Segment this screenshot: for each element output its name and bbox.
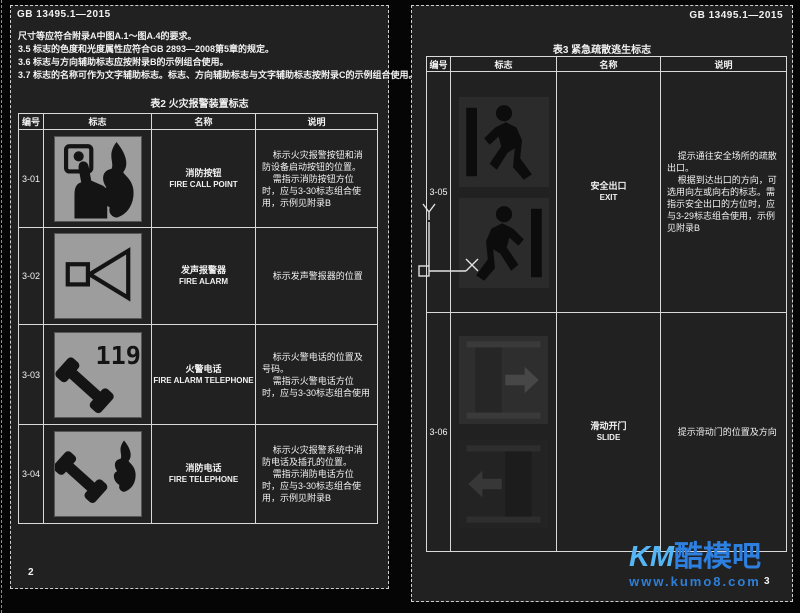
cad-canvas: GB 13495.1—2015 尺寸等应符合附录A中图A.1～图A.4的要求。 …: [0, 0, 800, 613]
sign-cell: 119: [44, 325, 151, 424]
row-id: 3-03: [19, 325, 43, 424]
fire-telephone-sign: [54, 431, 142, 517]
sign-cell: [44, 228, 151, 324]
table3-header-sign: 标志: [451, 57, 556, 71]
sign-name-cn: 发声报警器: [181, 264, 226, 276]
sign-name: 发声报警器 FIRE ALARM: [152, 228, 255, 324]
watermark-brand: KM酷模吧: [600, 542, 790, 572]
watermark-url: www.kumo8.com: [600, 574, 790, 589]
clause-line: 3.6 标志与方向辅助标志应按附录B的示例组合使用。: [18, 56, 386, 69]
clause-line: 3.7 标志的名称可作为文字辅助标志。标志、方向辅助标志与文字辅助标志按附录C的…: [18, 69, 386, 82]
fire-telephone-pictogram: [55, 432, 141, 516]
standard-number-left: GB 13495.1—2015: [17, 9, 111, 20]
sign-desc: 标示发声警报器的位置: [256, 228, 377, 324]
sign-desc: 标示火警电话的位置及号码。 需指示火警电话方位时，应与3-30标志组合使用: [256, 325, 377, 424]
desc-line: 标示火灾报警按钮和消防设备启动按钮的位置。: [262, 149, 371, 173]
table2-header-id: 编号: [19, 114, 43, 129]
sign-cell: [451, 313, 556, 551]
clause-line: 尺寸等应符合附录A中图A.1～图A.4的要求。: [18, 30, 386, 43]
table3-header-desc: 说明: [661, 57, 786, 71]
desc-line: 提示通往安全场所的疏散出口。: [667, 150, 780, 174]
slide-sign-stack: [459, 336, 548, 528]
ucs-axis-icon: [408, 196, 494, 288]
watermark: KM酷模吧 www.kumo8.com: [600, 542, 790, 589]
table2-header-desc: 说明: [256, 114, 377, 129]
sign-name: 安全出口 EXIT: [557, 72, 660, 312]
emergency-number-119: 119: [95, 341, 140, 370]
desc-line: 提示滑动门的位置及方向: [667, 426, 777, 438]
sign-cell: [44, 130, 151, 227]
sign-cell: [44, 425, 151, 523]
row-id: 3-01: [19, 130, 43, 227]
sign-desc: 提示通往安全场所的疏散出口。 根据到达出口的方向，可选用向左或向右的标志。需指示…: [661, 72, 786, 312]
sign-desc: 标示火灾报警按钮和消防设备启动按钮的位置。 需指示消防按钮方位时，应与3-30标…: [256, 130, 377, 227]
sign-name: 火警电话 FIRE ALARM TELEPHONE: [152, 325, 255, 424]
sign-name-en: FIRE TELEPHONE: [169, 474, 238, 486]
desc-line: 根据到达出口的方向，可选用向左或向右的标志。需指示安全出口的方位时，应与3-29…: [667, 174, 780, 234]
fire-alarm-telephone-pictogram: 119: [55, 333, 141, 417]
table2-header-sign: 标志: [44, 114, 151, 129]
sign-name-en: FIRE CALL POINT: [169, 179, 237, 191]
sign-name-cn: 消防电话: [185, 462, 221, 474]
sign-name: 消防电话 FIRE TELEPHONE: [152, 425, 255, 523]
sign-desc: 提示滑动门的位置及方向: [661, 313, 786, 551]
table2-title: 表2 火灾报警装置标志: [11, 95, 388, 110]
sign-name-en: FIRE ALARM TELEPHONE: [153, 375, 253, 387]
desc-line: 标示火警电话的位置及号码。: [262, 351, 371, 375]
exit-left-sign: [459, 97, 549, 187]
slide-door-right-sign: [459, 336, 548, 424]
y-axis-label-glyph: [423, 204, 435, 220]
fire-alarm-sign: [54, 233, 142, 319]
table2: 编号 标志 名称 说明 3-01 消防按钮 FIRE CALL POINT: [18, 113, 378, 524]
slide-door-left-pictogram: [459, 440, 548, 528]
table3-header-name: 名称: [557, 57, 660, 71]
fire-alarm-pictogram: [55, 234, 141, 318]
sign-name-en: EXIT: [600, 192, 618, 204]
fire-call-point-sign: [54, 136, 142, 222]
row-id: 3-02: [19, 228, 43, 324]
sign-name-cn: 消防按钮: [185, 167, 221, 179]
x-crosshair-glyph: [466, 259, 478, 271]
watermark-brand-km: KM: [629, 541, 674, 573]
sign-name-cn: 安全出口: [590, 180, 626, 192]
standard-number-right: GB 13495.1—2015: [689, 10, 783, 21]
sign-desc: 标示火灾报警系统中消防电话及插孔的位置。 需指示消防电话方位时，应与3-30标志…: [256, 425, 377, 523]
watermark-brand-cn: 酷模吧: [674, 541, 761, 573]
clause-line: 3.5 标志的色度和光度属性应符合GB 2893—2008第5章的规定。: [18, 43, 386, 56]
sheet-edge-dashed-line: [1, 0, 2, 613]
table3-title: 表3 紧急疏散逃生标志: [412, 41, 792, 56]
row-id: 3-04: [19, 425, 43, 523]
sign-name: 滑动开门 SLIDE: [557, 313, 660, 551]
page-number-2: 2: [28, 567, 34, 578]
desc-line: 标示火灾报警系统中消防电话及插孔的位置。: [262, 444, 371, 468]
sign-name: 消防按钮 FIRE CALL POINT: [152, 130, 255, 227]
desc-line: 需指示消防电话方位时，应与3-30标志组合使用，示例见附录B: [262, 468, 371, 504]
sign-name-cn: 滑动开门: [590, 420, 626, 432]
table3: 编号 标志 名称 说明 3-05: [426, 56, 787, 552]
running-man-left-pictogram: [459, 97, 549, 187]
page-3: GB 13495.1—2015 表3 紧急疏散逃生标志 编号 标志 名称 说明 …: [411, 5, 793, 602]
sign-name-en: FIRE ALARM: [179, 276, 228, 288]
page-2: GB 13495.1—2015 尺寸等应符合附录A中图A.1～图A.4的要求。 …: [10, 5, 389, 589]
desc-line: 标示发声警报器的位置: [262, 270, 363, 282]
table2-header-name: 名称: [152, 114, 255, 129]
fire-alarm-telephone-sign: 119: [54, 332, 142, 418]
sign-name-cn: 火警电话: [185, 363, 221, 375]
table3-header-id: 编号: [427, 57, 450, 71]
slide-door-right-pictogram: [459, 336, 548, 424]
row-id: 3-06: [427, 313, 450, 551]
sign-name-en: SLIDE: [597, 432, 621, 444]
fire-call-point-pictogram: [55, 137, 141, 221]
slide-door-left-sign: [459, 440, 548, 528]
desc-line: 需指示消防按钮方位时，应与3-30标志组合使用，示例见附录B: [262, 173, 371, 209]
desc-line: 需指示火警电话方位时，应与3-30标志组合使用: [262, 375, 371, 399]
clauses-block: 尺寸等应符合附录A中图A.1～图A.4的要求。 3.5 标志的色度和光度属性应符…: [18, 30, 386, 82]
